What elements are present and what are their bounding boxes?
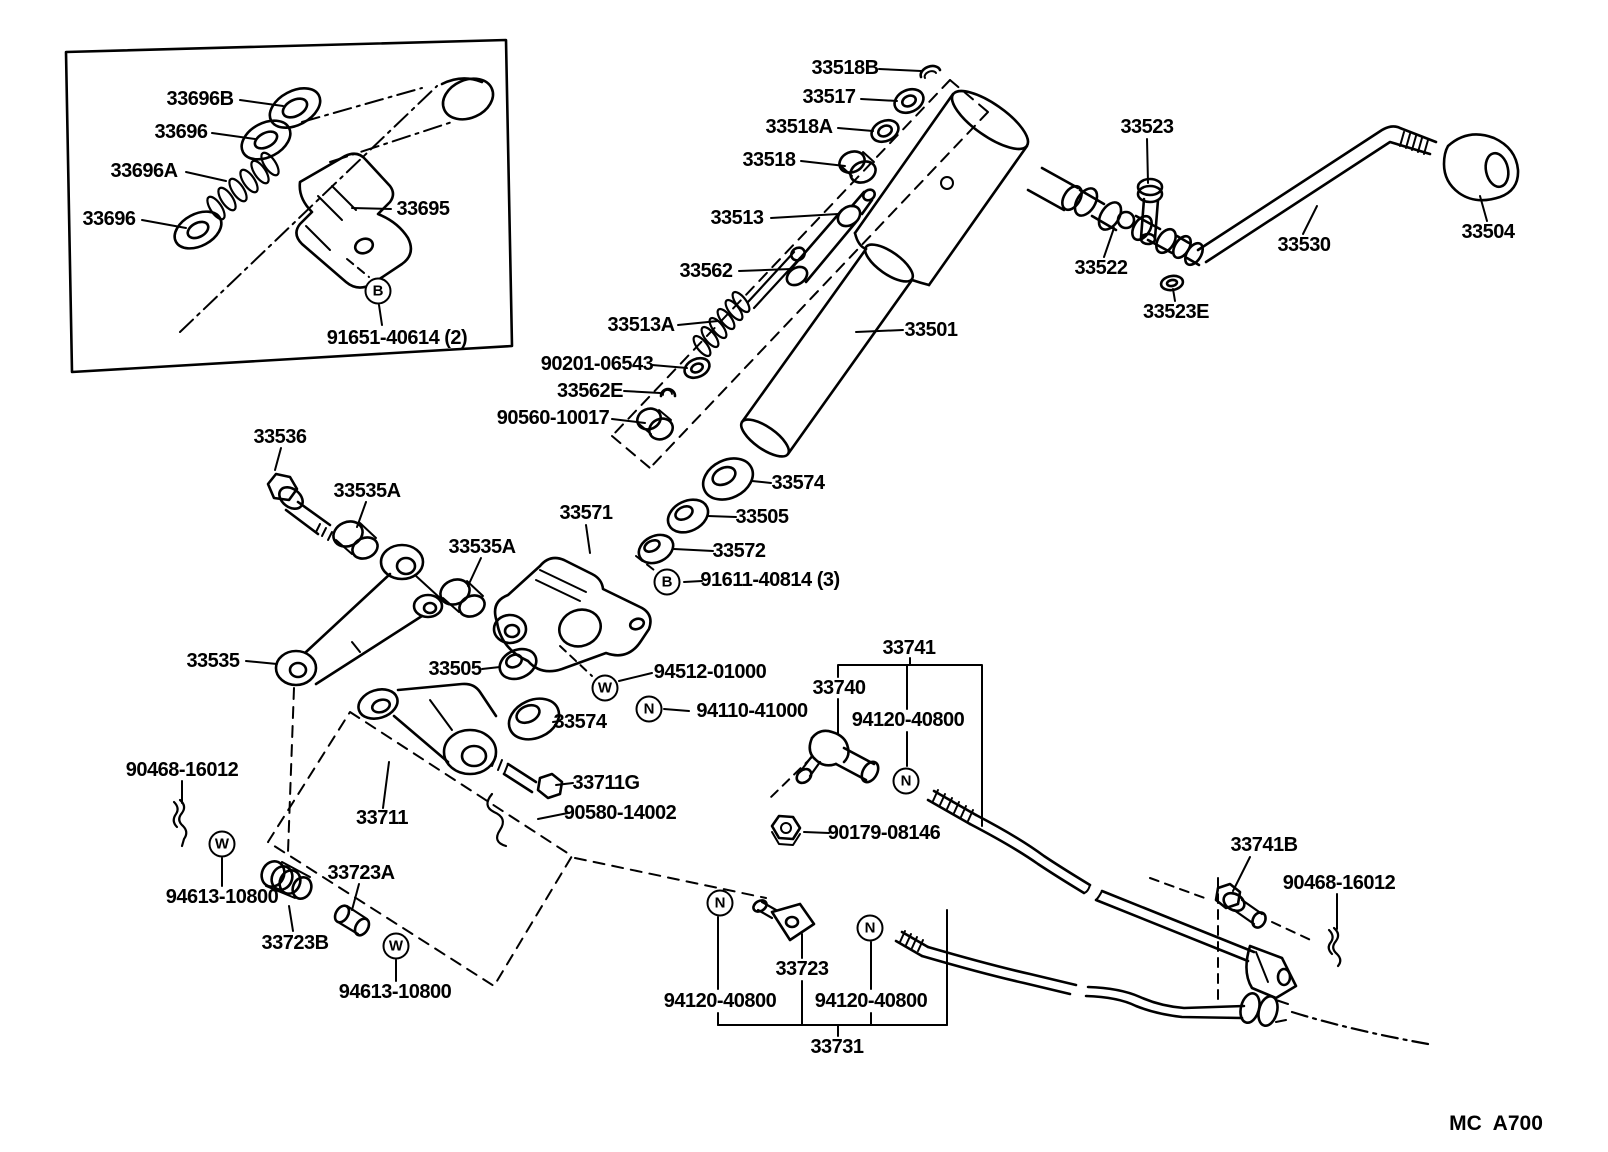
part-label-33723B: 33723B [261,933,328,953]
part-label-33696: 33696 [154,122,207,142]
part-label-33741B: 33741B [1230,835,1297,855]
part-label-94613-10800-2: 94613-10800 [339,982,451,1002]
part-label-90468-16012-2: 90468-16012 [1283,873,1395,893]
part-label-33574: 33574 [771,473,824,493]
part-label-33530: 33530 [1277,235,1330,255]
part-label-33740: 33740 [812,678,865,698]
part-label-33711: 33711 [356,808,408,828]
circled-marker-W3: W [383,933,410,960]
part-label-33513A: 33513A [607,315,674,335]
circled-marker-N3: N [707,890,734,917]
circled-marker-N4: N [857,915,884,942]
part-label-33505: 33505 [735,507,788,527]
part-label-33535: 33535 [186,651,239,671]
part-label-33504: 33504 [1461,222,1514,242]
part-label-33523E: 33523E [1143,302,1209,322]
part-label-33574-2: 33574 [553,712,606,732]
part-label-94512-01000: 94512-01000 [654,662,766,682]
part-label-94120-40800: 94120-40800 [852,710,964,730]
part-label-90179-08146: 90179-08146 [828,823,940,843]
part-label-91651-40614: 91651-40614 (2) [327,328,467,348]
bracket-33711 [268,684,766,986]
part-label-33535A: 33535A [333,481,400,501]
part-label-33723A: 33723A [327,863,394,883]
part-label-33518B: 33518B [811,58,878,78]
circled-marker-B1: B [365,278,392,305]
part-label-33505-2: 33505 [428,659,481,679]
part-label-94613-10800: 94613-10800 [166,887,278,907]
part-label-33536: 33536 [253,427,306,447]
part-label-33562: 33562 [679,261,732,281]
part-label-33741: 33741 [882,638,935,658]
circled-marker-N2: N [893,768,920,795]
part-label-33572: 33572 [712,541,765,561]
part-label-90560-10017: 90560-10017 [497,408,609,428]
part-label-91611-40814: 91611-40814 (3) [700,570,839,590]
part-label-33571: 33571 [559,503,612,523]
drawing-code: MC A700 [1449,1112,1543,1136]
control-shaft-33501 [612,80,1036,468]
part-label-33535A-2: 33535A [448,537,515,557]
part-label-33522: 33522 [1074,258,1127,278]
part-label-33696B: 33696B [166,89,233,109]
part-label-94110-41000: 94110-41000 [696,701,807,721]
part-label-33518A: 33518A [765,117,832,137]
part-label-33518: 33518 [742,150,795,170]
part-label-33696A: 33696A [110,161,177,181]
connecting-rods [896,790,1428,1044]
part-label-33513: 33513 [710,208,763,228]
part-label-94120-40800-2: 94120-40800 [664,991,776,1011]
part-label-33695: 33695 [396,199,449,219]
part-label-33731: 33731 [810,1037,863,1057]
part-label-33723: 33723 [775,959,828,979]
circled-marker-N1: N [636,696,663,723]
part-label-33696-2: 33696 [82,209,135,229]
part-label-33523: 33523 [1120,117,1173,137]
part-label-33562E: 33562E [557,381,623,401]
part-label-33501: 33501 [904,320,957,340]
part-label-90580-14002: 90580-14002 [564,803,676,823]
part-label-90201-06543: 90201-06543 [541,354,653,374]
circled-marker-B2: B [654,569,681,596]
part-label-33711G: 33711G [572,773,639,793]
circled-marker-W2: W [209,831,236,858]
part-label-33517: 33517 [802,87,855,107]
circled-marker-W1: W [592,675,619,702]
part-label-94120-40800-3: 94120-40800 [815,991,927,1011]
parts-diagram-canvas: 33696B3369633696A336963369591651-40614 (… [0,0,1608,1152]
part-label-90468-16012: 90468-16012 [126,760,238,780]
